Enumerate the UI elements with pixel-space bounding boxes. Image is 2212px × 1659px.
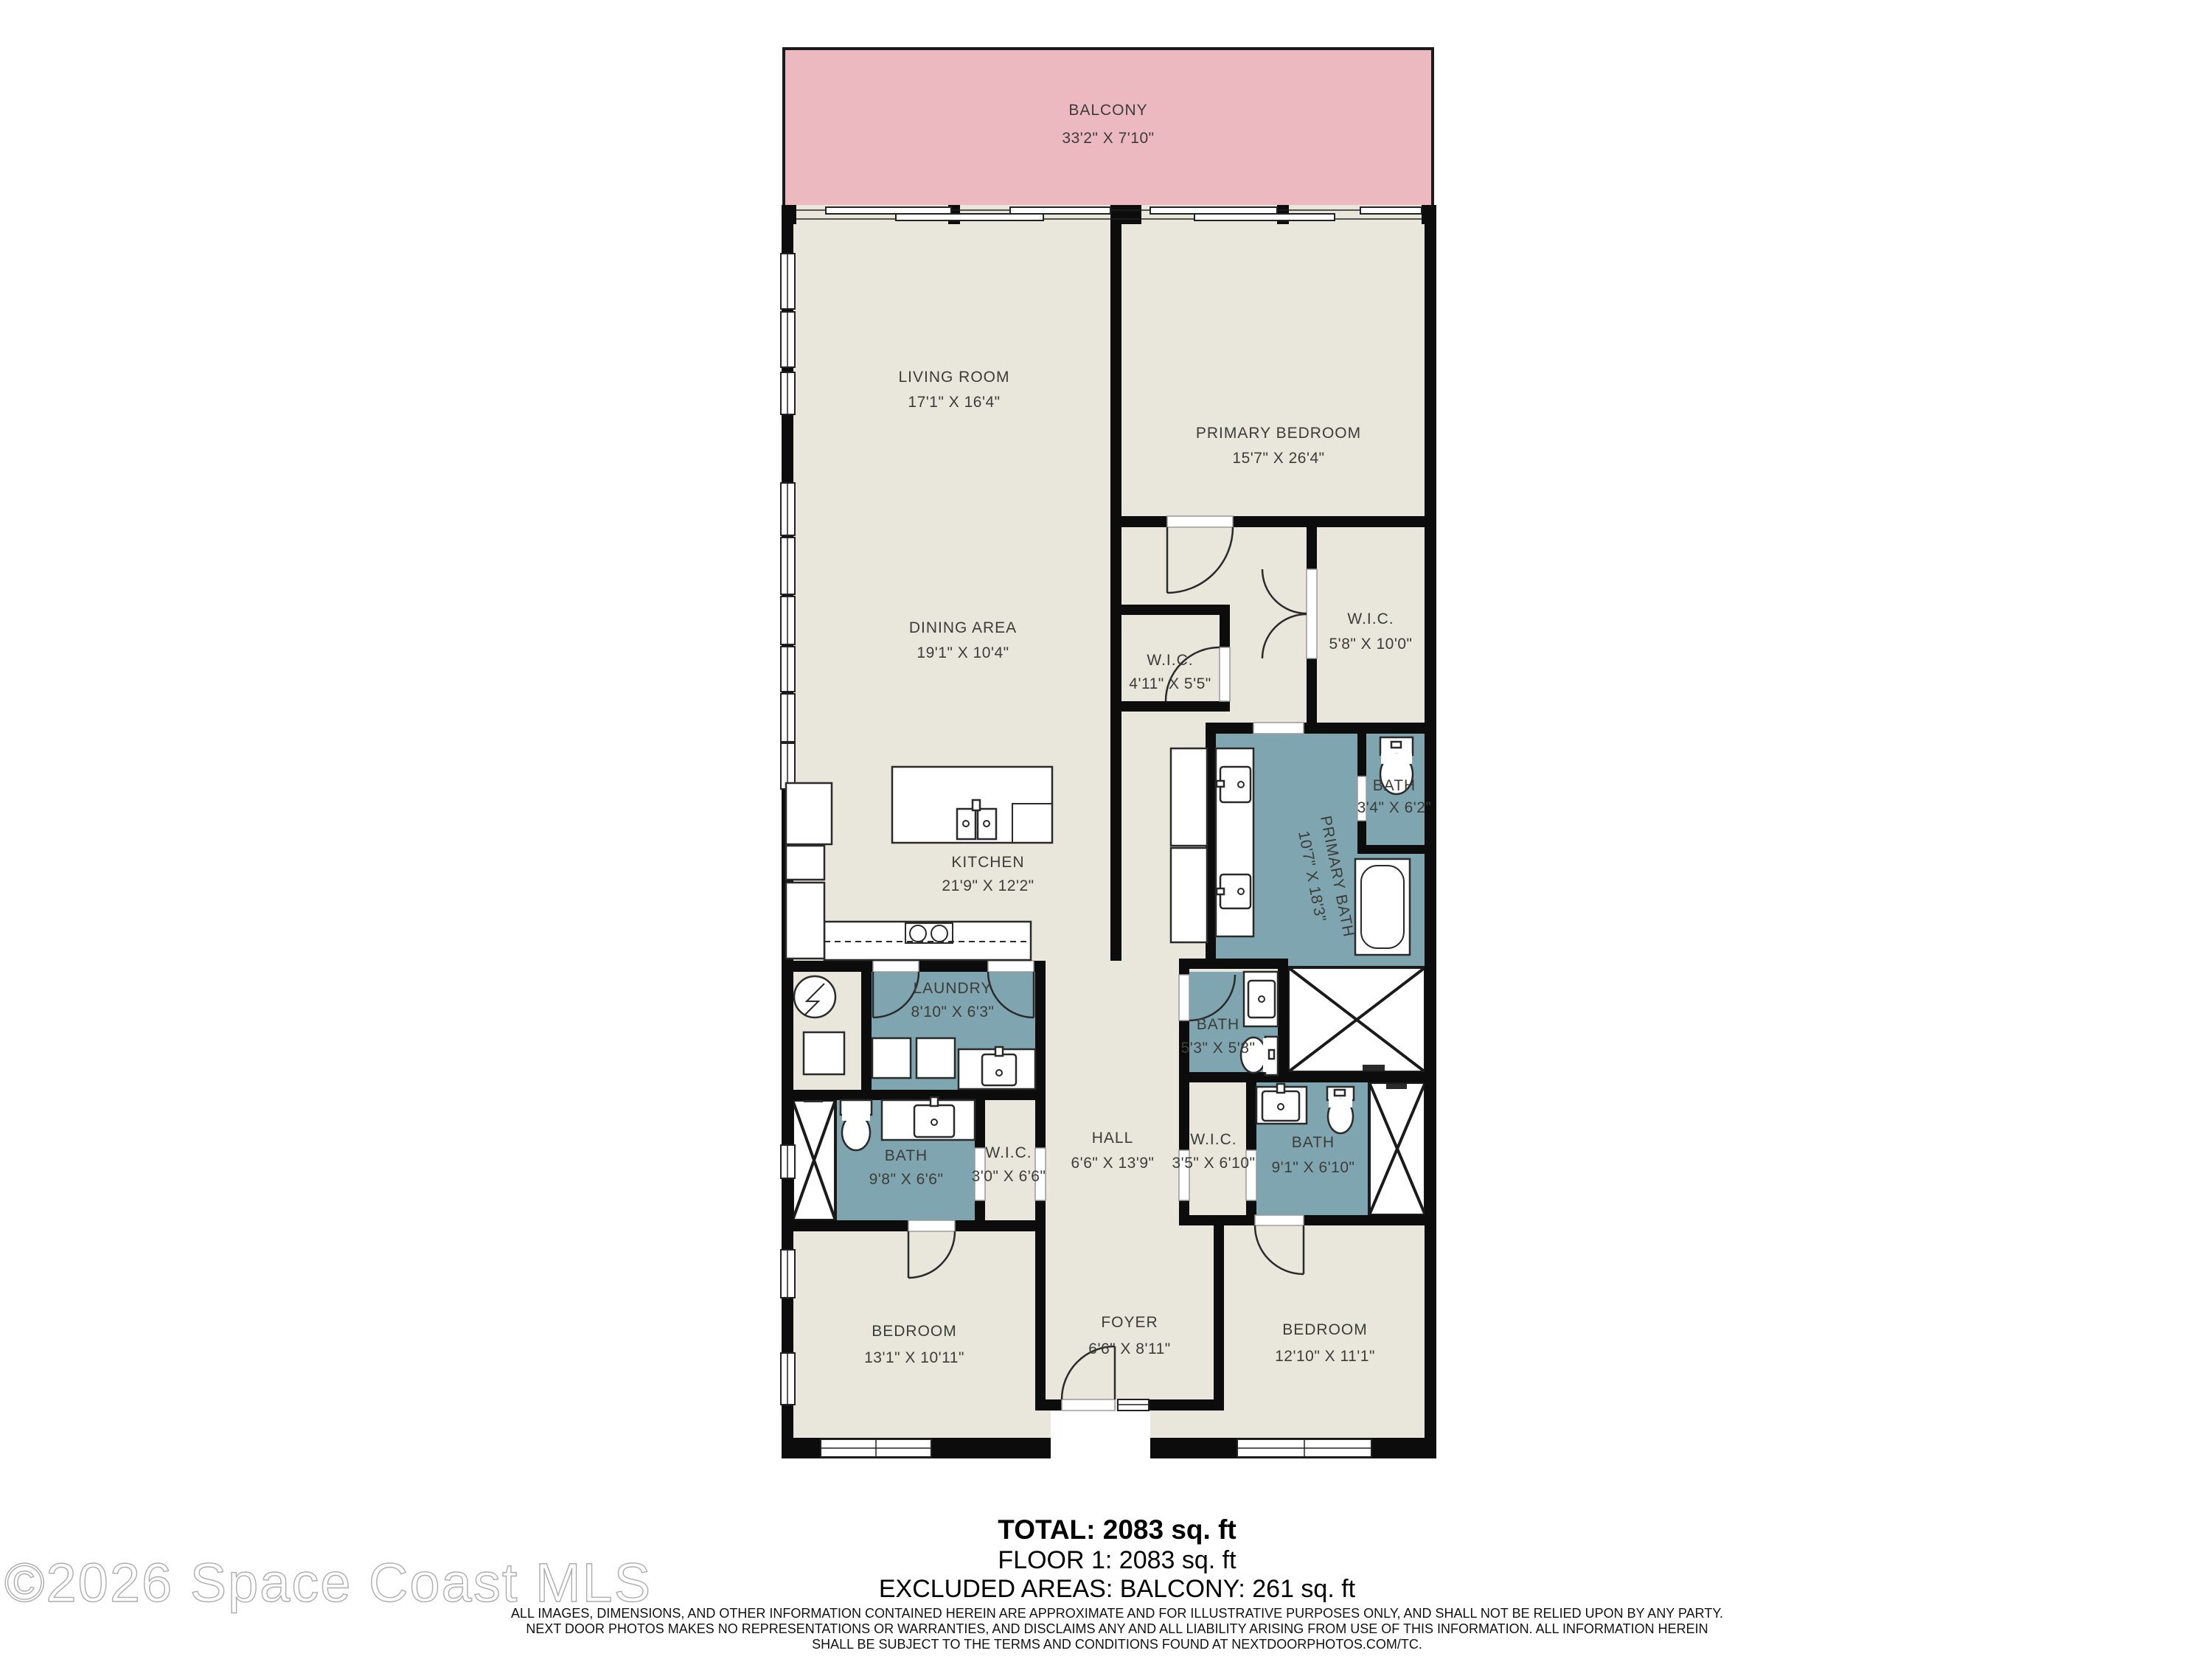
dims-foyer: 6'6" X 8'11" xyxy=(1088,1340,1170,1357)
dims-laundry: 8'10" X 6'3" xyxy=(911,1004,995,1020)
label-bath-wc: BATH xyxy=(1373,777,1416,794)
floor-plan: BALCONY 33'2" X 7'10" LIVING ROOM 17'1" … xyxy=(0,0,2212,1659)
disclaimer-line-2: NEXT DOOR PHOTOS MAKES NO REPRESENTATION… xyxy=(526,1621,1708,1636)
label-right-wic: W.I.C. xyxy=(1190,1131,1237,1148)
balcony-area xyxy=(784,49,1433,206)
disclaimer-line-1: ALL IMAGES, DIMENSIONS, AND OTHER INFORM… xyxy=(511,1606,1723,1621)
dims-hall-bath: 5'3" X 5'8" xyxy=(1181,1040,1256,1057)
dims-right-bath: 9'1" X 6'10" xyxy=(1272,1159,1355,1176)
kitchen-counter-icon xyxy=(824,922,1031,960)
water-heater-icon xyxy=(804,1032,844,1074)
label-hall-bath: BATH xyxy=(1197,1016,1239,1033)
label-kitchen: KITCHEN xyxy=(951,854,1024,871)
linen-cabinet-icon xyxy=(1171,748,1207,942)
laundry-vanity-icon xyxy=(959,1047,1035,1089)
dims-left-bedroom: 13'1" X 10'11" xyxy=(864,1349,964,1366)
right-bath-shower-icon xyxy=(1369,1082,1425,1215)
label-laundry: LAUNDRY xyxy=(914,980,992,997)
label-dining-area: DINING AREA xyxy=(909,619,1017,636)
footer: TOTAL: 2083 sq. ft FLOOR 1: 2083 sq. ft … xyxy=(511,1514,1723,1652)
dims-kitchen: 21'9" X 12'2" xyxy=(942,877,1034,894)
hall-bath-fixtures xyxy=(1241,972,1278,1075)
total-area-text: TOTAL: 2083 sq. ft xyxy=(998,1514,1236,1545)
left-bath-shower-icon xyxy=(793,1097,835,1220)
primary-bath-vanity-icon xyxy=(1216,748,1253,936)
dims-balcony: 33'2" X 7'10" xyxy=(1062,130,1154,147)
electrical-panel-icon xyxy=(794,976,835,1018)
dims-primary-bedroom: 15'7" X 26'4" xyxy=(1232,450,1324,467)
label-hall: HALL xyxy=(1092,1130,1134,1147)
dims-wic-small: 4'11" X 5'5" xyxy=(1129,675,1211,692)
excluded-area-text: EXCLUDED AREAS: BALCONY: 261 sq. ft xyxy=(879,1575,1356,1603)
label-living-room: LIVING ROOM xyxy=(898,369,1009,386)
floor-area-text: FLOOR 1: 2083 sq. ft xyxy=(998,1546,1237,1574)
primary-shower-icon xyxy=(1288,967,1425,1072)
label-primary-bedroom: PRIMARY BEDROOM xyxy=(1196,425,1361,442)
dims-left-bath: 9'8" X 6'6" xyxy=(869,1171,944,1188)
watermark: ©2026 Space Coast MLS xyxy=(4,1552,652,1613)
label-left-wic: W.I.C. xyxy=(985,1144,1032,1161)
label-right-bath: BATH xyxy=(1292,1134,1335,1151)
floor-areas xyxy=(782,49,1436,1458)
disclaimer-line-3: SHALL BE SUBJECT TO THE TERMS AND CONDIT… xyxy=(812,1637,1422,1652)
label-foyer: FOYER xyxy=(1101,1314,1158,1331)
label-wic-large: W.I.C. xyxy=(1347,611,1394,627)
dims-hall: 6'6" X 13'9" xyxy=(1071,1155,1155,1172)
label-wic-small: W.I.C. xyxy=(1147,652,1193,669)
entry-porch xyxy=(1051,1411,1150,1458)
dims-right-bedroom: 12'10" X 11'1" xyxy=(1275,1348,1375,1365)
dims-bath-wc: 3'4" X 6'2" xyxy=(1357,799,1432,816)
label-left-bath: BATH xyxy=(885,1147,928,1164)
kitchen-island-icon xyxy=(892,767,1052,843)
dims-right-wic: 3'5" X 6'10" xyxy=(1172,1155,1256,1172)
label-balcony: BALCONY xyxy=(1068,102,1147,119)
dims-living-room: 17'1" X 16'4" xyxy=(908,394,1000,411)
fridge-icon xyxy=(786,783,832,959)
dims-dining-area: 19'1" X 10'4" xyxy=(917,644,1009,661)
bathtub-icon xyxy=(1355,859,1410,955)
label-left-bedroom: BEDROOM xyxy=(872,1323,957,1340)
dims-wic-large: 5'8" X 10'0" xyxy=(1329,636,1413,653)
dims-left-wic: 3'0" X 6'6" xyxy=(972,1168,1046,1185)
label-right-bedroom: BEDROOM xyxy=(1282,1321,1368,1338)
